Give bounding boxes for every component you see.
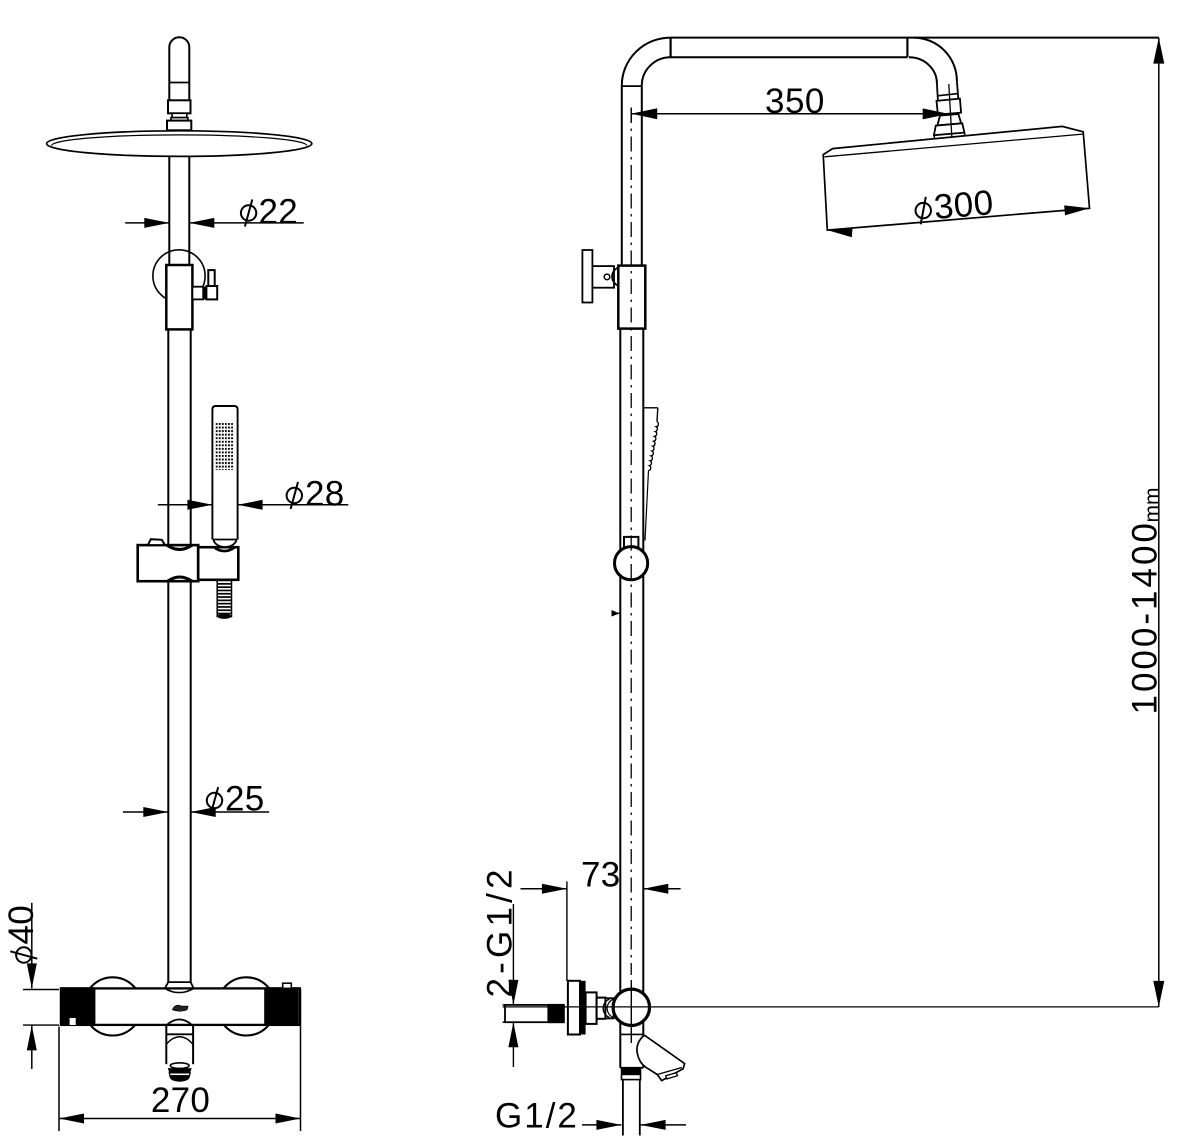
svg-text:22: 22	[259, 193, 299, 232]
svg-text:300: 300	[932, 183, 995, 227]
svg-text:73: 73	[581, 855, 621, 894]
svg-text:mm: mm	[1141, 488, 1164, 523]
svg-text:25: 25	[225, 780, 265, 819]
svg-text:G1/2: G1/2	[495, 1097, 579, 1136]
svg-text:350: 350	[765, 82, 825, 121]
svg-text:40: 40	[2, 905, 41, 945]
svg-text:28: 28	[305, 475, 345, 514]
svg-text:270: 270	[151, 1081, 210, 1120]
svg-text:1000-1400: 1000-1400	[1126, 520, 1165, 714]
svg-text:2-G1/2: 2-G1/2	[481, 865, 520, 997]
